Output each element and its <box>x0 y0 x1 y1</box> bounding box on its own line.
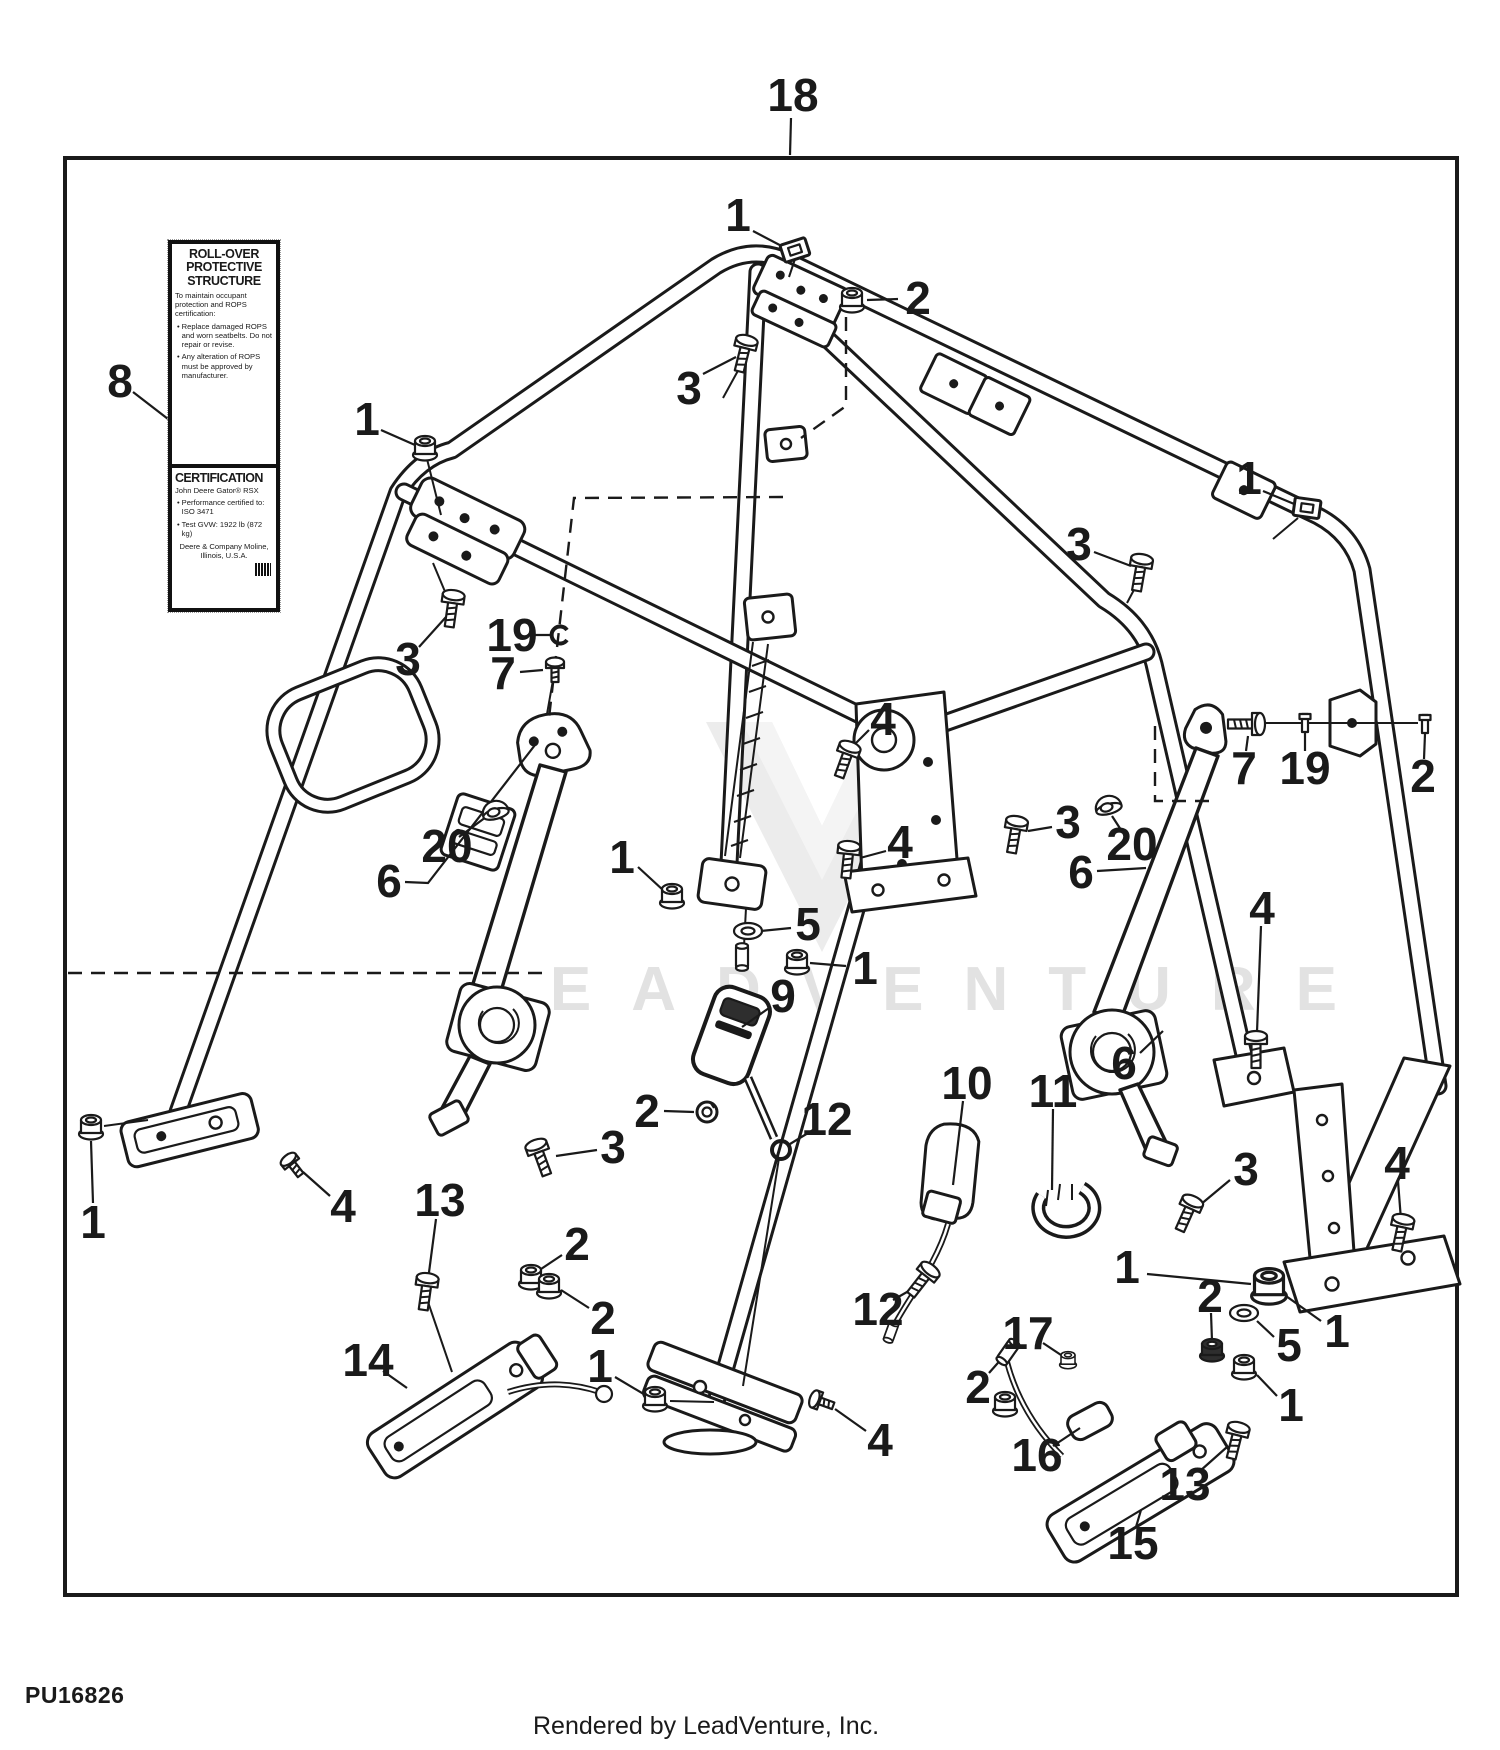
callout-number-3: 3 <box>1055 796 1081 848</box>
bolt-fastener <box>902 1259 942 1302</box>
clipnut-fastener <box>1293 497 1321 518</box>
leader-line-4 <box>835 1409 866 1431</box>
nut-fastener <box>993 1392 1017 1417</box>
callout-number-2: 2 <box>1197 1270 1223 1322</box>
label-bullet: • Any alteration of ROPS must be approve… <box>177 352 273 380</box>
callout-number-1: 1 <box>1236 452 1262 504</box>
belt-latch <box>894 1117 992 1326</box>
callout-number-1: 1 <box>1278 1379 1304 1431</box>
callout-number-1: 1 <box>609 831 635 883</box>
callout-number-6: 6 <box>376 855 402 907</box>
callout-number-11: 11 <box>1029 1065 1078 1117</box>
callout-number-2: 2 <box>1410 750 1436 802</box>
callout-number-4: 4 <box>867 1414 893 1466</box>
callout-number-5: 5 <box>1276 1319 1302 1371</box>
leader-line-3 <box>419 617 446 647</box>
bolt-fastener <box>1001 814 1029 854</box>
cable-clip <box>1064 1399 1115 1443</box>
callout-number-7: 7 <box>1231 742 1257 794</box>
bolt-fastener <box>1170 1192 1205 1235</box>
label-title: ROLL-OVER PROTECTIVE STRUCTURE <box>175 248 273 288</box>
leader-line-2 <box>867 299 898 300</box>
leader-line-1 <box>91 1141 93 1203</box>
callout-number-2: 2 <box>564 1218 590 1270</box>
callout-number-3: 3 <box>676 362 702 414</box>
callout-number-20: 20 <box>421 820 472 872</box>
nutbig-fastener <box>1252 1269 1287 1305</box>
leader-line-3 <box>1028 827 1052 831</box>
leader-line-13 <box>428 1219 436 1280</box>
callout-number-14: 14 <box>342 1334 394 1386</box>
part-number: PU16826 <box>25 1682 124 1709</box>
leader-line-5 <box>1257 1321 1274 1337</box>
label-bullet: • Test GVW: 1922 lb (872 kg) <box>177 520 273 539</box>
leader-line-3 <box>1200 1180 1230 1205</box>
callout-number-2: 2 <box>634 1085 660 1137</box>
certification-model: John Deere Gator® RSX <box>175 486 273 495</box>
callout-number-1: 1 <box>1114 1241 1140 1293</box>
bullet-icon: • <box>177 498 180 517</box>
callout-number-3: 3 <box>395 633 421 685</box>
label-intro: To maintain occupant protection and ROPS… <box>175 291 273 319</box>
nut-fastener <box>840 288 864 313</box>
callout-number-4: 4 <box>887 816 913 868</box>
callout-number-4: 4 <box>330 1180 356 1232</box>
label-bullet: • Performance certified to: ISO 3471 <box>177 498 273 517</box>
callout-number-1: 1 <box>1324 1305 1350 1357</box>
cyl-fastener <box>736 943 748 971</box>
callout-number-2: 2 <box>905 272 931 324</box>
leader-line-1 <box>381 430 415 445</box>
center-belt-anchor-plate <box>697 858 767 910</box>
bolt-fastener <box>1126 552 1154 592</box>
pin-fastener <box>1300 714 1311 732</box>
nut-fastener <box>1232 1355 1256 1380</box>
callout-number-1: 1 <box>354 393 380 445</box>
clipnut-fastener <box>780 237 810 262</box>
callout-number-13: 13 <box>1159 1458 1210 1510</box>
callout-number-6: 6 <box>1111 1037 1137 1089</box>
leader-line-18 <box>790 118 791 155</box>
callout-number-5: 5 <box>795 898 821 950</box>
callout-number-4: 4 <box>870 693 896 745</box>
callout-number-13: 13 <box>414 1174 465 1226</box>
label-title-line: PROTECTIVE <box>175 261 273 274</box>
rh-foot-bracket <box>1284 1058 1460 1312</box>
certification-title: CERTIFICATION <box>175 472 273 485</box>
callout-number-12: 12 <box>852 1283 903 1335</box>
nut-fastener <box>537 1274 561 1299</box>
nut-fastener <box>660 884 684 909</box>
leader-line-1 <box>615 1377 647 1396</box>
callout-number-15: 15 <box>1107 1517 1158 1569</box>
callout-number-2: 2 <box>590 1292 616 1344</box>
nut-fastener <box>79 1115 103 1140</box>
render-credit: Rendered by LeadVenture, Inc. <box>533 1712 879 1741</box>
label-title-line: STRUCTURE <box>175 275 273 288</box>
leader-line-1 <box>1257 1375 1277 1396</box>
leader-line-5 <box>761 928 791 931</box>
certification-section: CERTIFICATION John Deere Gator® RSX • Pe… <box>172 468 276 608</box>
bolt-fastener <box>1228 713 1265 735</box>
washer-fastener <box>1230 1305 1258 1321</box>
callout-number-3: 3 <box>1233 1143 1259 1195</box>
callout-number-1: 1 <box>80 1196 106 1248</box>
bolt-fastener <box>524 1136 557 1178</box>
nut-fastener <box>643 1387 667 1412</box>
callout-number-4: 4 <box>1384 1137 1410 1189</box>
bolt-fastener <box>412 1272 439 1312</box>
parts-diagram-page: LEADVENTURE <box>0 0 1500 1750</box>
leader-line-8 <box>133 392 168 419</box>
callout-number-3: 3 <box>600 1121 626 1173</box>
nutdark-fastener <box>1200 1339 1224 1362</box>
leader-line-4 <box>303 1172 330 1196</box>
callout-number-18: 18 <box>767 69 818 121</box>
leader-line-11 <box>1052 1109 1053 1190</box>
callout-number-4: 4 <box>1249 882 1275 934</box>
callout-number-16: 16 <box>1011 1429 1062 1481</box>
callout-number-17: 17 <box>1002 1307 1053 1359</box>
leader-line-3 <box>703 357 736 374</box>
nut-fastener <box>1060 1352 1077 1369</box>
leader-line-7 <box>520 670 543 672</box>
screw-fastener <box>807 1389 836 1414</box>
callout-number-6: 6 <box>1068 846 1094 898</box>
certification-footer: Deere & Company Moline, Illinois, U.S.A. <box>175 542 273 561</box>
bullet-icon: • <box>177 352 180 380</box>
callout-number-1: 1 <box>725 189 751 241</box>
rops-safety-label: ROLL-OVER PROTECTIVE STRUCTURE To mainta… <box>168 240 280 612</box>
screw-fastener <box>546 658 564 683</box>
callout-number-1: 1 <box>587 1340 613 1392</box>
callout-number-7: 7 <box>490 647 516 699</box>
callout-number-2: 2 <box>965 1361 991 1413</box>
callout-number-1: 1 <box>852 942 878 994</box>
callout-number-8: 8 <box>107 355 133 407</box>
nut-fastener <box>413 436 437 461</box>
callout-number-20: 20 <box>1106 818 1157 870</box>
callout-number-12: 12 <box>801 1093 852 1145</box>
leader-line-2 <box>664 1111 694 1112</box>
label-bullet: • Replace damaged ROPS and worn seatbelt… <box>177 322 273 350</box>
callout-number-19: 19 <box>1279 742 1330 794</box>
cap-fastener <box>1093 793 1123 817</box>
rh-belt-anchor <box>1182 702 1232 756</box>
leader-line-2 <box>561 1290 589 1308</box>
lockwasher-fastener <box>697 1102 717 1122</box>
label-title-line: ROLL-OVER <box>175 248 273 261</box>
leader-line-3 <box>556 1150 597 1156</box>
bullet-icon: • <box>177 322 180 350</box>
callout-number-9: 9 <box>770 970 796 1022</box>
callout-number-10: 10 <box>941 1057 992 1109</box>
bullet-icon: • <box>177 520 180 539</box>
label-barcode-icon <box>255 563 271 576</box>
rollover-section: ROLL-OVER PROTECTIVE STRUCTURE To mainta… <box>172 244 276 464</box>
leader-line-1 <box>638 867 663 890</box>
pin-fastener <box>1420 715 1431 733</box>
callout-number-3: 3 <box>1066 518 1092 570</box>
washer-fastener <box>734 923 762 939</box>
leader-line-3 <box>1094 552 1131 566</box>
screw-fastener <box>278 1150 307 1180</box>
